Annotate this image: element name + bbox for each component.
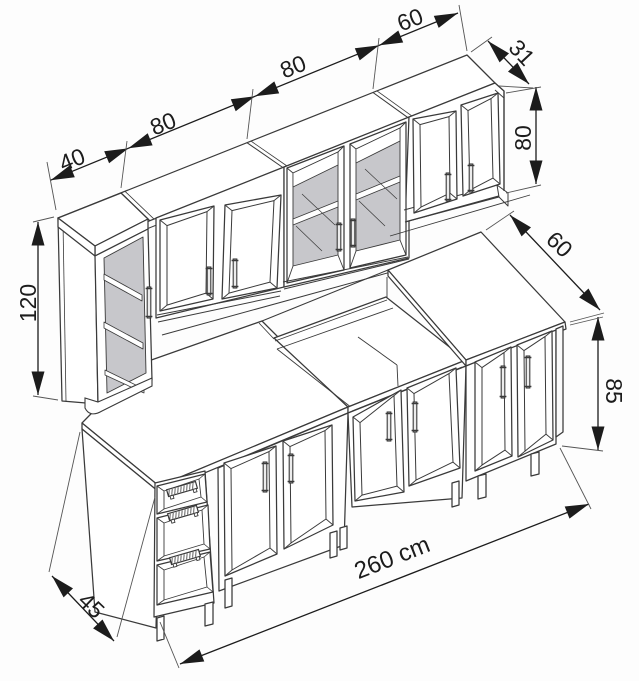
svg-text:120: 120 — [15, 284, 41, 322]
svg-text:85: 85 — [601, 378, 627, 404]
svg-text:80: 80 — [510, 125, 536, 151]
